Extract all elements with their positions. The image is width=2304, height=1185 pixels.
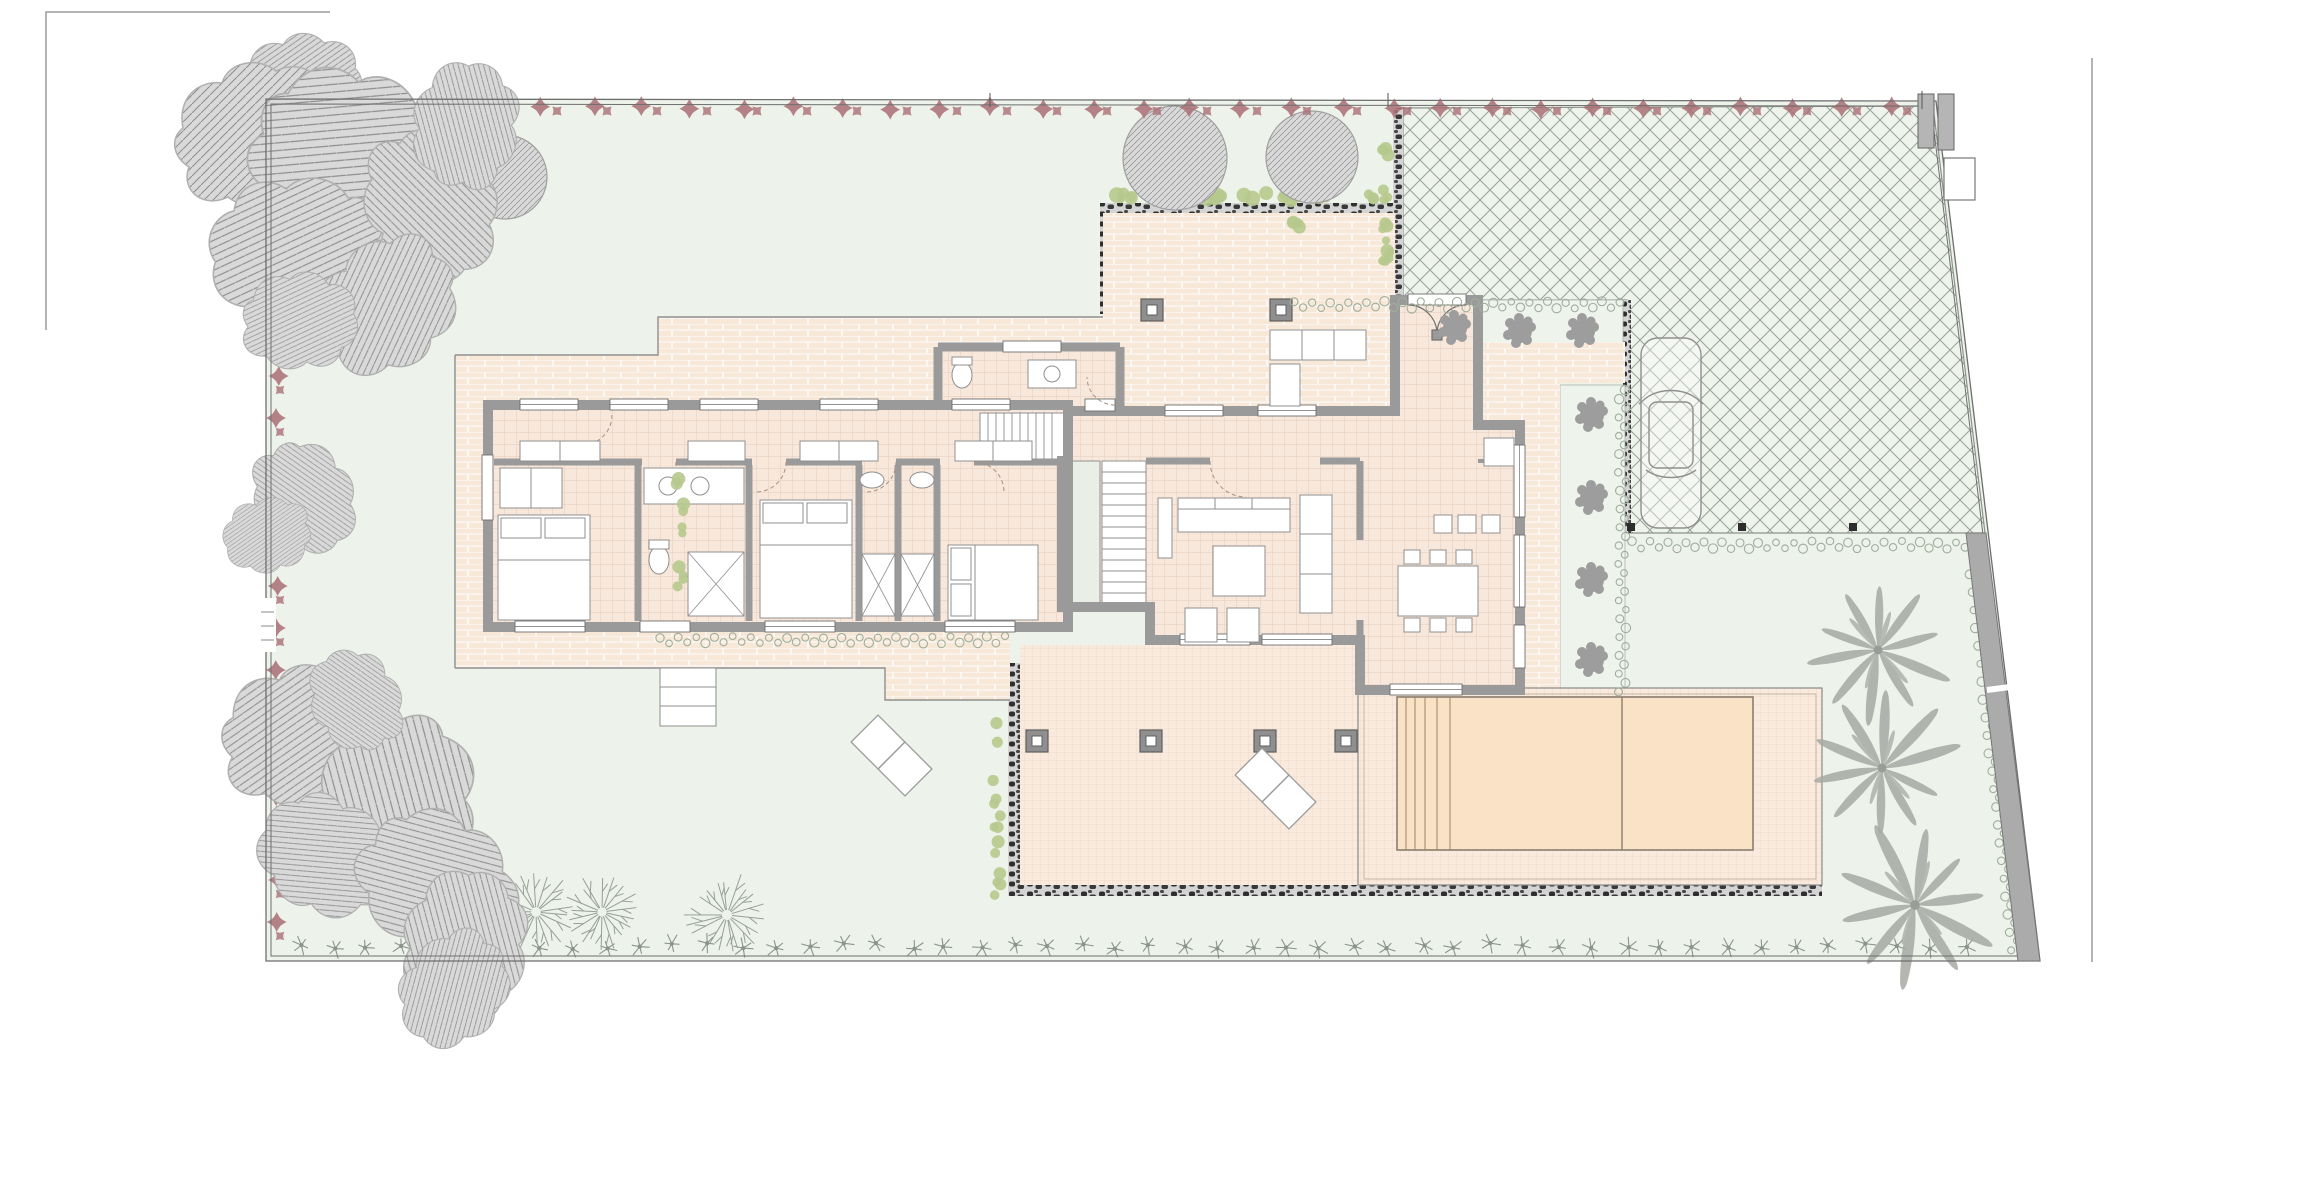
swimming-pool <box>1397 697 1753 850</box>
hob <box>1434 515 1452 533</box>
wc-sink <box>1028 360 1076 388</box>
floor-plan-page <box>0 0 2304 1185</box>
garden-gate <box>259 598 276 652</box>
toilet <box>649 546 669 574</box>
sofa-2 <box>1300 495 1332 613</box>
coffee-table <box>1213 546 1265 596</box>
site-plan-drawing <box>0 0 2304 1185</box>
wc-toilet <box>952 362 972 388</box>
car-icon <box>1639 338 1703 528</box>
sofa <box>1178 498 1290 532</box>
dining-table <box>1398 566 1478 616</box>
fridge <box>1484 438 1514 466</box>
